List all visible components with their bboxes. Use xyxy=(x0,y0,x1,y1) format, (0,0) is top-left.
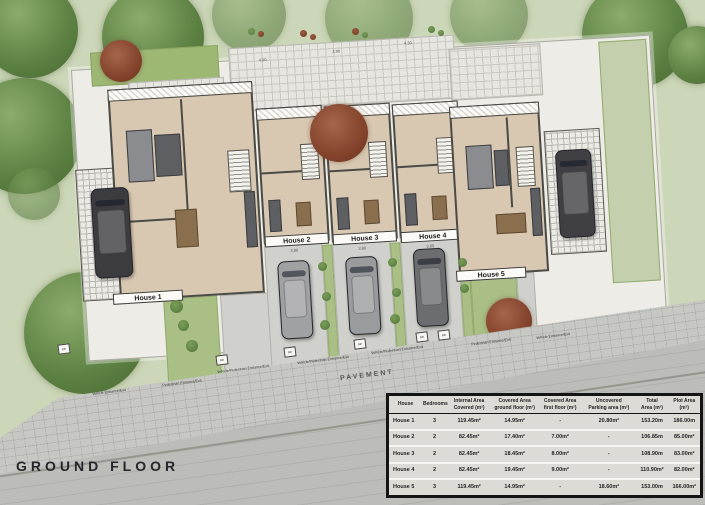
table-cell: 108.90m xyxy=(636,446,669,463)
table-cell: 9.00m² xyxy=(538,463,582,480)
rug xyxy=(126,129,155,182)
dimension-label: 3.80 xyxy=(358,246,366,251)
bush-icon xyxy=(362,32,368,38)
car-icon xyxy=(345,256,382,336)
table-cell: 153.20m xyxy=(636,414,669,430)
table-cell: 7.00m² xyxy=(538,430,582,447)
bin-marker: Bin xyxy=(353,338,366,349)
table-cell: - xyxy=(582,463,635,480)
bush-icon xyxy=(352,28,359,35)
dining-table xyxy=(496,213,527,235)
table-cell: 14.95m² xyxy=(491,414,538,430)
car-icon xyxy=(413,248,450,328)
kitchen-counter xyxy=(530,188,543,237)
bush-icon xyxy=(320,320,330,330)
table-row: House 2282.45m²17.40m²7.00m²-106.85m85.0… xyxy=(388,430,702,447)
table-cell: 85.00m² xyxy=(668,430,701,447)
bush-icon xyxy=(388,258,397,267)
column-header: Internal Area Covered (m²) xyxy=(447,395,491,414)
bush-icon xyxy=(248,28,255,35)
table-cell: - xyxy=(582,430,635,447)
dining-table xyxy=(363,199,379,224)
bush-icon xyxy=(458,258,467,267)
kitchen-counter xyxy=(268,199,282,232)
bush-icon xyxy=(258,31,264,37)
bin-marker: Bin xyxy=(283,346,296,357)
bush-icon xyxy=(186,340,198,352)
rear-patio xyxy=(448,43,543,101)
table-cell: 3 xyxy=(422,414,447,430)
table-cell: 8.00m² xyxy=(538,446,582,463)
tree-icon xyxy=(310,104,368,162)
table-cell: 119.45m² xyxy=(447,414,491,430)
table-cell: 82.45m² xyxy=(447,463,491,480)
bin-marker: Bin xyxy=(57,343,70,354)
house-5-plan xyxy=(449,101,549,276)
table-cell: 2 xyxy=(422,463,447,480)
column-header: Bedrooms xyxy=(422,395,447,414)
table-cell: 19.45m² xyxy=(491,463,538,480)
table-row: House 13119.45m²14.95m²-20.80m²153.20m18… xyxy=(388,414,702,430)
bush-icon xyxy=(322,292,331,301)
car-icon xyxy=(90,187,133,279)
table-cell: 83.00m² xyxy=(668,446,701,463)
kitchen-counter xyxy=(336,197,350,230)
dimension-label: 3.80 xyxy=(290,248,298,253)
table-row: House 53119.45m²14.95m²-18.60m²153.00m16… xyxy=(388,479,702,496)
table-cell: House 5 xyxy=(388,479,423,496)
table-cell: 153.00m xyxy=(636,479,669,496)
bin-marker: Bin xyxy=(437,329,450,340)
bin-marker: Bin xyxy=(215,354,228,365)
table-cell: 3 xyxy=(422,479,447,496)
drawing-title: GROUND FLOOR xyxy=(16,458,179,474)
column-header: Uncovered Parking area (m²) xyxy=(582,395,635,414)
column-header: House xyxy=(388,395,423,414)
car-icon xyxy=(277,260,314,340)
table-cell: House 4 xyxy=(388,463,423,480)
bush-icon xyxy=(460,284,469,293)
table-row: House 4282.45m²19.45m²9.00m²-110.90m²82.… xyxy=(388,463,702,480)
dining-table xyxy=(431,195,447,220)
table-cell: House 3 xyxy=(388,446,423,463)
bush-icon xyxy=(170,300,183,313)
table-cell: 17.40m² xyxy=(491,430,538,447)
bush-icon xyxy=(428,26,435,33)
table-cell: 186.00m xyxy=(668,414,701,430)
column-header: Covered Area first floor (m²) xyxy=(538,395,582,414)
table-cell: 82.45m² xyxy=(447,430,491,447)
bush-icon xyxy=(310,34,316,40)
table-cell: 14.95m² xyxy=(491,479,538,496)
dimension-label: 4.00 xyxy=(259,58,267,63)
table-cell: 18.60m² xyxy=(582,479,635,496)
site-plan-drawing: 4.00 3.90 4.30 3.85 5.00 2.80 xyxy=(0,0,705,505)
bush-icon xyxy=(392,288,401,297)
bush-icon xyxy=(300,30,307,37)
table-cell: 82.45m² xyxy=(447,446,491,463)
bush-icon xyxy=(438,30,444,36)
table-cell: House 2 xyxy=(388,430,423,447)
rug xyxy=(465,144,494,190)
car-icon xyxy=(555,148,596,238)
dining-table xyxy=(175,209,199,248)
bin-marker: Bin xyxy=(415,331,428,342)
table-cell: 2 xyxy=(422,430,447,447)
dimension-label: 3.90 xyxy=(332,50,340,55)
table-cell: 119.45m² xyxy=(447,479,491,496)
table-row: House 3282.45m²18.45m²8.00m²-108.90m83.0… xyxy=(388,446,702,463)
area-schedule-table: HouseBedroomsInternal Area Covered (m²)C… xyxy=(386,393,703,498)
table-cell: 82.00m² xyxy=(668,463,701,480)
column-header: Plot Area (m²) xyxy=(668,395,701,414)
table-cell: - xyxy=(538,479,582,496)
stairs xyxy=(368,141,388,178)
tree-icon xyxy=(100,40,142,82)
table-cell: 106.85m xyxy=(636,430,669,447)
table-cell: 110.90m² xyxy=(636,463,669,480)
table-cell: House 1 xyxy=(388,414,423,430)
table-cell: 2 xyxy=(422,446,447,463)
table-cell: - xyxy=(582,446,635,463)
table-cell: 20.80m² xyxy=(582,414,635,430)
dining-table xyxy=(295,202,311,227)
dimension-label: 4.30 xyxy=(404,41,412,46)
kitchen-counter xyxy=(244,191,258,248)
stairs xyxy=(227,149,252,192)
column-header: Covered Area ground floor (m²) xyxy=(491,395,538,414)
table-cell: - xyxy=(538,414,582,430)
table-cell: 18.45m² xyxy=(491,446,538,463)
terrace xyxy=(256,105,323,121)
kitchen-counter xyxy=(404,193,418,226)
stairs xyxy=(515,146,535,187)
bush-icon xyxy=(318,262,327,271)
sofa xyxy=(494,149,510,186)
bush-icon xyxy=(178,320,189,331)
bush-icon xyxy=(390,314,400,324)
table-cell: 166.00m² xyxy=(668,479,701,496)
table-header-row: HouseBedroomsInternal Area Covered (m²)C… xyxy=(388,395,702,414)
sofa xyxy=(154,133,183,177)
column-header: Total Area (m²) xyxy=(636,395,669,414)
